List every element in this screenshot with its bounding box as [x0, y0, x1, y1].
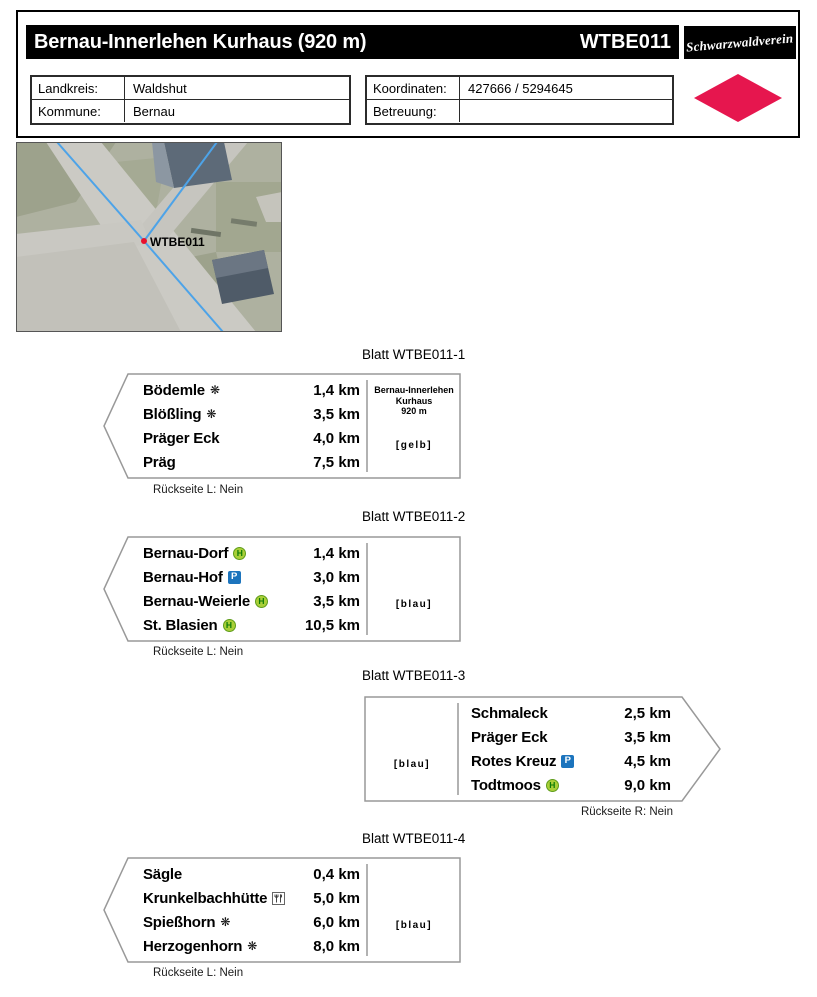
destination-name: Bernau-Dorf: [143, 545, 228, 562]
trail-color-tag: [blau]: [368, 599, 460, 610]
rueckseite-note-2: Rückseite L: Nein: [153, 646, 243, 658]
parking-icon: P: [561, 755, 574, 768]
destination-name: Rotes Kreuz: [471, 753, 556, 770]
distance: 9,0 km: [624, 777, 671, 794]
destination-name: Krunkelbachhütte: [143, 890, 267, 907]
destination-name: Blößling: [143, 406, 201, 423]
info-table-left: Landkreis: Waldshut Kommune: Bernau: [30, 75, 351, 125]
destination-name: Spießhorn: [143, 914, 215, 931]
snowflake-icon: ❋: [247, 940, 257, 952]
destination-row: Präger Eck 4,0 km: [143, 430, 360, 447]
destination-name: Sägle: [143, 866, 182, 883]
distance: 4,0 km: [313, 430, 360, 447]
distance: 7,5 km: [313, 454, 360, 471]
snowflake-icon: ❋: [220, 916, 230, 928]
destination-row: Bernau-Weierle H 3,5 km: [143, 593, 360, 610]
blatt-heading-2: Blatt WTBE011-2: [362, 509, 465, 524]
kommune-value: Bernau: [125, 104, 349, 119]
sign-blade-1: Bödemle ❋ 1,4 km Blößling ❋ 3,5 km Präge…: [103, 373, 462, 479]
distance: 8,0 km: [313, 938, 360, 955]
bus-stop-icon: H: [223, 619, 236, 632]
destination-name: Todtmoos: [471, 777, 541, 794]
destination-row: Schmaleck 2,5 km: [471, 705, 671, 722]
trail-color-tag: [blau]: [368, 920, 460, 931]
destination-row: Präger Eck 3,5 km: [471, 729, 671, 746]
wegweiser-datenblatt: Bernau-Innerlehen Kurhaus (920 m) WTBE01…: [0, 0, 817, 997]
distance: 0,4 km: [313, 866, 360, 883]
destination-row: St. Blasien H 10,5 km: [143, 617, 360, 634]
destination-row: Blößling ❋ 3,5 km: [143, 406, 360, 423]
destination-list: Bernau-Dorf H 1,4 km Bernau-Hof P 3,0 km…: [143, 541, 360, 637]
schwarzwaldverein-diamond-icon: [694, 74, 782, 122]
destination-list: Bödemle ❋ 1,4 km Blößling ❋ 3,5 km Präge…: [143, 378, 360, 474]
sign-location-panel: [blau]: [368, 536, 460, 642]
destination-row: Rotes Kreuz P 4,5 km: [471, 753, 671, 770]
sign-blade-3: [blau] Schmaleck 2,5 km Präger Eck 3,5 k…: [364, 696, 722, 802]
destination-name: Präger Eck: [471, 729, 547, 746]
kommune-label: Kommune:: [32, 100, 125, 122]
parking-icon: P: [228, 571, 241, 584]
destination-name: Präg: [143, 454, 176, 471]
destination-name: Herzogenhorn: [143, 938, 242, 955]
restaurant-icon: [272, 892, 285, 905]
info-table-right: Koordinaten: 427666 / 5294645 Betreuung:: [365, 75, 674, 125]
destination-row: Krunkelbachhütte 5,0 km: [143, 890, 360, 907]
header-box: Bernau-Innerlehen Kurhaus (920 m) WTBE01…: [16, 10, 800, 138]
distance: 1,4 km: [313, 382, 360, 399]
blatt-heading-3: Blatt WTBE011-3: [362, 668, 465, 683]
destination-name: Schmaleck: [471, 705, 548, 722]
destination-row: Spießhorn ❋ 6,0 km: [143, 914, 360, 931]
location-name: Bernau-Innerlehen Kurhaus 920 m: [368, 385, 460, 417]
distance: 5,0 km: [313, 890, 360, 907]
distance: 3,0 km: [313, 569, 360, 586]
landkreis-label: Landkreis:: [32, 77, 125, 99]
table-row: Kommune: Bernau: [32, 100, 349, 122]
aerial-photo: WTBE011: [16, 142, 282, 332]
sign-blade-4: Sägle 0,4 km Krunkelbachhütte 5,0 km Spi…: [103, 857, 462, 963]
distance: 3,5 km: [313, 406, 360, 423]
rueckseite-note-3: Rückseite R: Nein: [364, 806, 673, 818]
snowflake-icon: ❋: [206, 408, 216, 420]
trail-color-tag: [gelb]: [368, 440, 460, 451]
distance: 1,4 km: [313, 545, 360, 562]
destination-list: Schmaleck 2,5 km Präger Eck 3,5 km Rotes…: [471, 701, 671, 797]
signpost-code: WTBE011: [580, 31, 671, 54]
destination-name: Bernau-Weierle: [143, 593, 250, 610]
distance: 10,5 km: [305, 617, 360, 634]
sign-location-panel: Bernau-Innerlehen Kurhaus 920 m [gelb]: [368, 373, 460, 479]
distance: 4,5 km: [624, 753, 671, 770]
destination-row: Bernau-Dorf H 1,4 km: [143, 545, 360, 562]
destination-row: Todtmoos H 9,0 km: [471, 777, 671, 794]
destination-name: Bernau-Hof: [143, 569, 223, 586]
table-row: Landkreis: Waldshut: [32, 77, 349, 100]
destination-row: Bernau-Hof P 3,0 km: [143, 569, 360, 586]
landkreis-value: Waldshut: [125, 81, 349, 96]
sign-location-panel: [blau]: [368, 857, 460, 963]
destination-list: Sägle 0,4 km Krunkelbachhütte 5,0 km Spi…: [143, 862, 360, 958]
building-roof: [164, 142, 232, 188]
blatt-heading-1: Blatt WTBE011-1: [362, 347, 465, 362]
blatt-heading-4: Blatt WTBE011-4: [362, 831, 465, 846]
bus-stop-icon: H: [233, 547, 246, 560]
betreuung-label: Betreuung:: [367, 100, 460, 122]
destination-row: Bödemle ❋ 1,4 km: [143, 382, 360, 399]
signpost-marker-label: WTBE011: [150, 235, 205, 249]
distance: 2,5 km: [624, 705, 671, 722]
destination-row: Sägle 0,4 km: [143, 866, 360, 883]
destination-name: Bödemle: [143, 382, 205, 399]
signpost-marker-dot: [141, 238, 147, 244]
rueckseite-note-4: Rückseite L: Nein: [153, 967, 243, 979]
koordinaten-value: 427666 / 5294645: [460, 81, 672, 96]
distance: 3,5 km: [313, 593, 360, 610]
trail-color-tag: [blau]: [366, 759, 458, 770]
sign-blade-2: Bernau-Dorf H 1,4 km Bernau-Hof P 3,0 km…: [103, 536, 462, 642]
destination-row: Präg 7,5 km: [143, 454, 360, 471]
destination-name: St. Blasien: [143, 617, 218, 634]
distance: 6,0 km: [313, 914, 360, 931]
rueckseite-note-1: Rückseite L: Nein: [153, 484, 243, 496]
bus-stop-icon: H: [546, 779, 559, 792]
destination-row: Herzogenhorn ❋ 8,0 km: [143, 938, 360, 955]
distance: 3,5 km: [624, 729, 671, 746]
sign-location-panel: [blau]: [366, 696, 458, 802]
title-bar: Bernau-Innerlehen Kurhaus (920 m) WTBE01…: [26, 25, 679, 59]
destination-name: Präger Eck: [143, 430, 219, 447]
table-row: Betreuung:: [367, 100, 672, 122]
page-title: Bernau-Innerlehen Kurhaus (920 m): [34, 31, 366, 54]
schwarzwaldverein-wordmark: Schwarzwaldverein: [686, 30, 794, 55]
bus-stop-icon: H: [255, 595, 268, 608]
schwarzwaldverein-logo-bar: Schwarzwaldverein: [684, 26, 796, 59]
table-row: Koordinaten: 427666 / 5294645: [367, 77, 672, 100]
koordinaten-label: Koordinaten:: [367, 77, 460, 99]
snowflake-icon: ❋: [210, 384, 220, 396]
